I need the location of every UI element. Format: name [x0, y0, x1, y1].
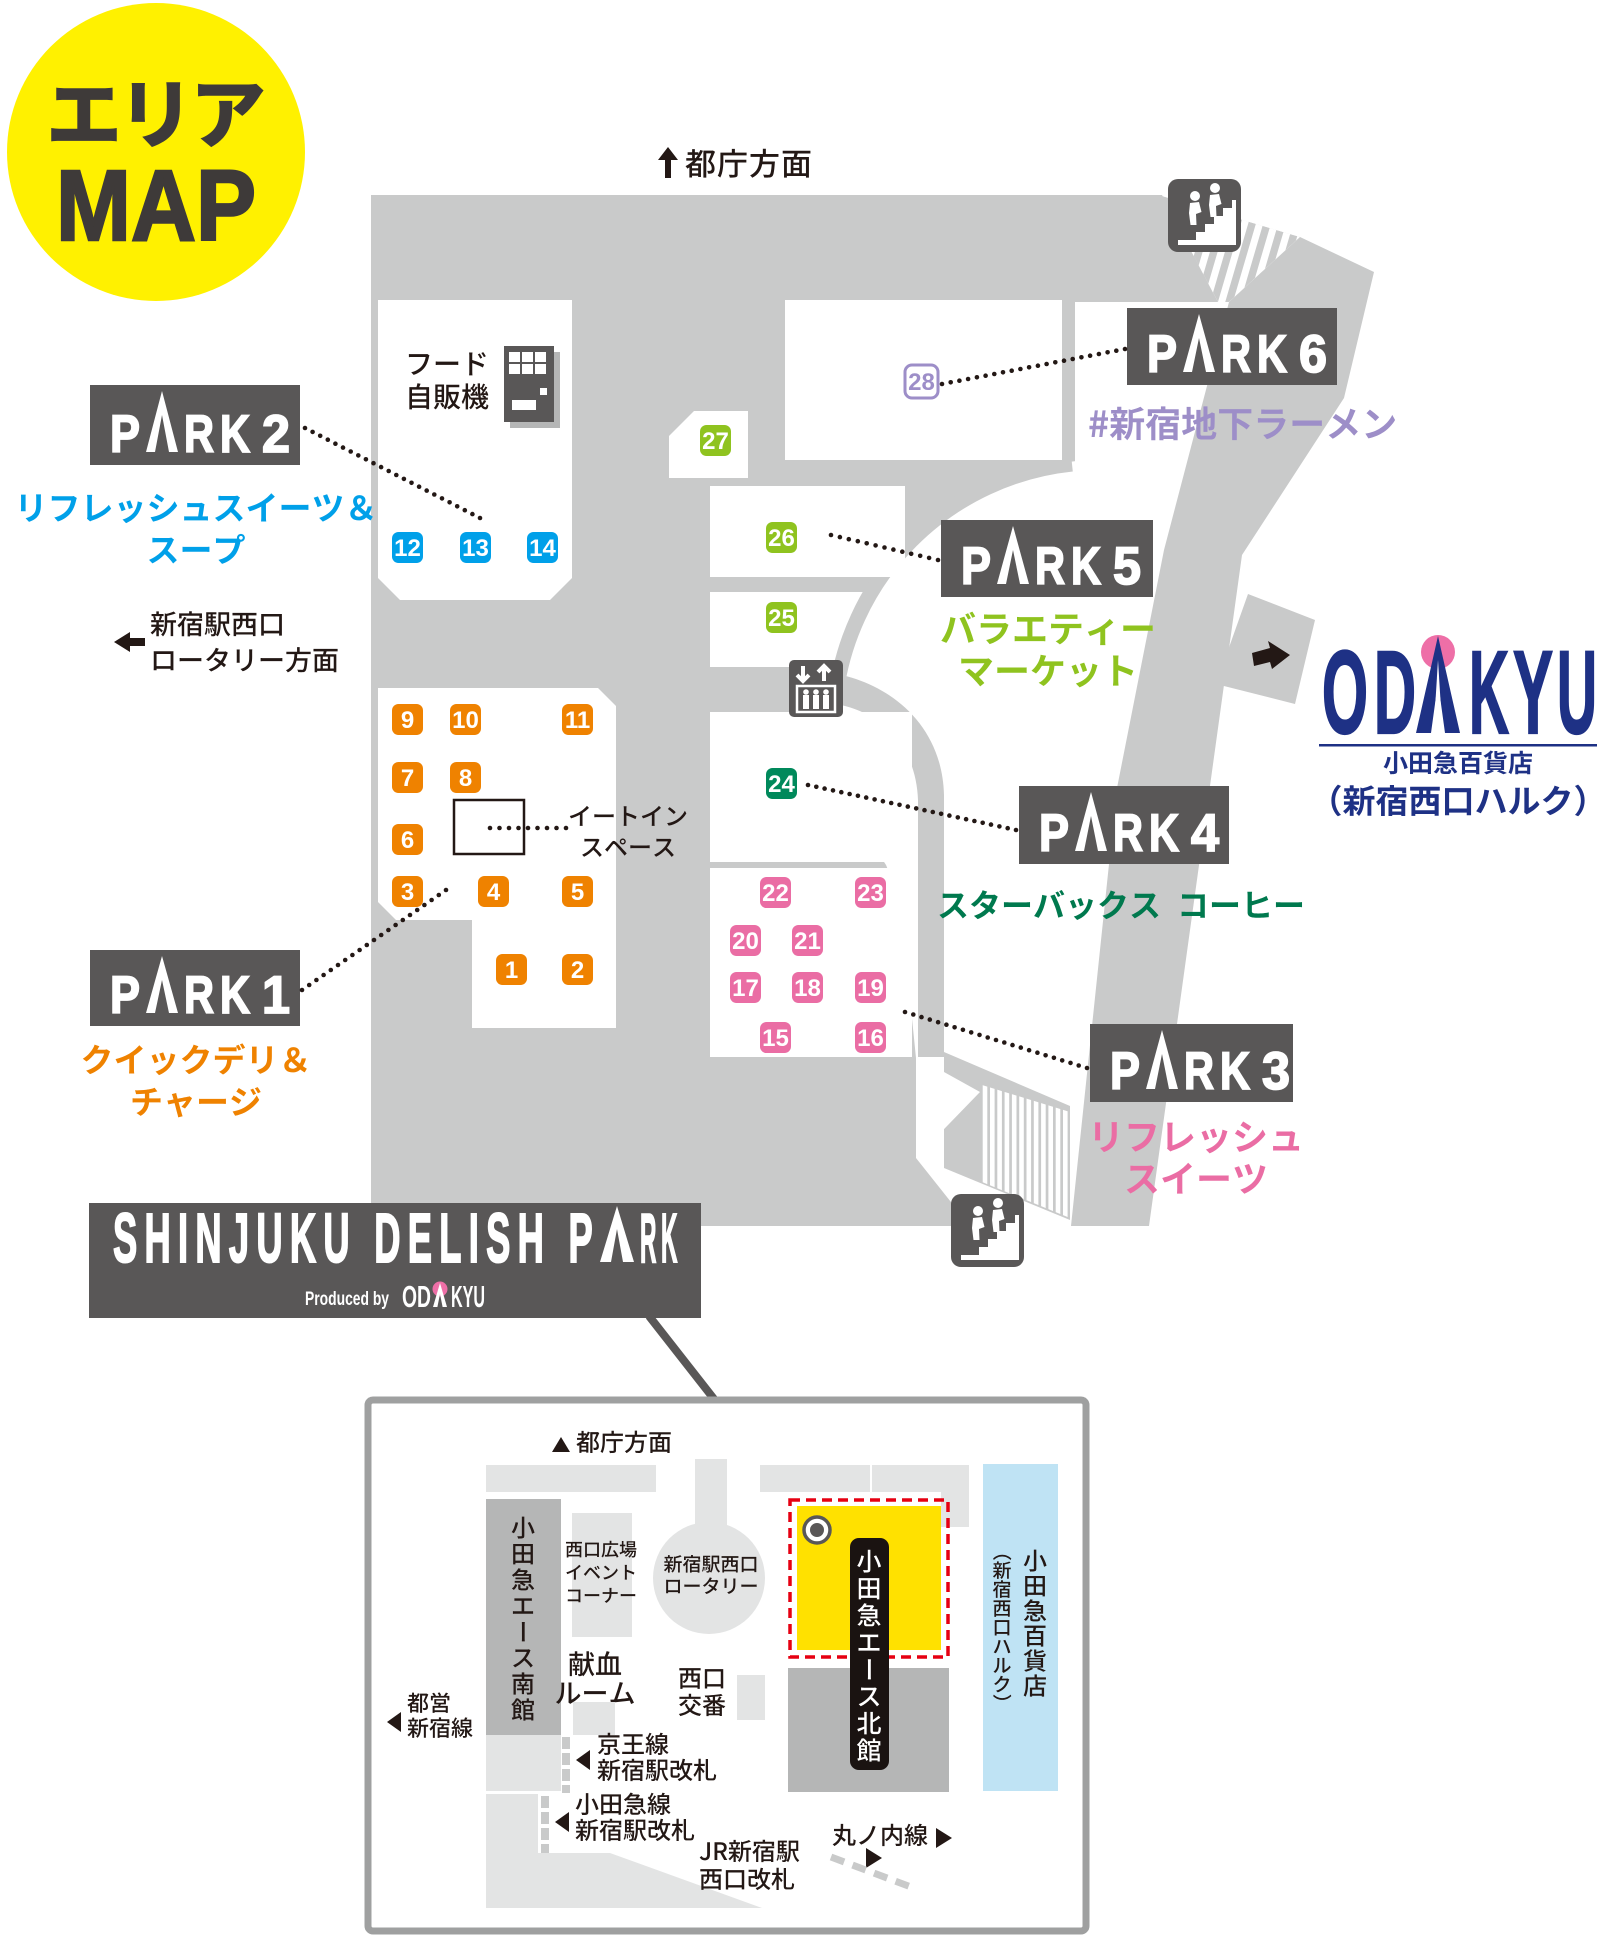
svg-text:17: 17 — [732, 975, 759, 1002]
svg-text:5: 5 — [1113, 537, 1141, 596]
svg-text:O: O — [1322, 627, 1368, 759]
svg-text:P: P — [961, 537, 991, 596]
svg-text:6: 6 — [1299, 325, 1327, 384]
svg-text:R: R — [1035, 537, 1065, 596]
svg-text:K: K — [1071, 537, 1101, 596]
svg-text:SHINJUKU DELISH P: SHINJUKU DELISH P — [113, 1199, 600, 1277]
svg-text:1: 1 — [262, 966, 290, 1025]
svg-text:27: 27 — [702, 428, 729, 455]
svg-text:K: K — [1469, 627, 1509, 759]
svg-text:12: 12 — [394, 535, 421, 562]
svg-text:4: 4 — [1191, 804, 1219, 863]
svg-text:RK: RK — [640, 1199, 682, 1277]
svg-text:R: R — [1221, 325, 1251, 384]
svg-text:6: 6 — [401, 827, 414, 854]
svg-text:K: K — [1149, 804, 1179, 863]
svg-text:16: 16 — [857, 1025, 884, 1052]
svg-text:23: 23 — [857, 880, 884, 907]
svg-text:9: 9 — [401, 707, 414, 734]
svg-text:4: 4 — [487, 879, 501, 906]
svg-text:14: 14 — [529, 535, 556, 562]
svg-text:13: 13 — [462, 535, 489, 562]
svg-text:8: 8 — [459, 765, 472, 792]
svg-text:18: 18 — [794, 975, 821, 1002]
svg-text:K: K — [1220, 1042, 1250, 1101]
svg-text:10: 10 — [452, 707, 479, 734]
svg-text:3: 3 — [401, 879, 414, 906]
svg-text:3: 3 — [1262, 1042, 1290, 1101]
svg-text:P: P — [1147, 325, 1177, 384]
svg-text:22: 22 — [762, 880, 789, 907]
svg-text:KYU: KYU — [451, 1279, 485, 1314]
svg-text:15: 15 — [762, 1025, 789, 1052]
svg-text:D: D — [1374, 627, 1416, 759]
svg-text:11: 11 — [565, 707, 590, 734]
svg-text:OD: OD — [402, 1279, 431, 1314]
svg-text:R: R — [184, 405, 214, 464]
svg-text:K: K — [1257, 325, 1287, 384]
svg-text:1: 1 — [505, 957, 518, 984]
svg-text:7: 7 — [401, 765, 414, 792]
svg-text:26: 26 — [768, 525, 795, 552]
svg-text:MAP: MAP — [56, 150, 256, 262]
svg-text:Y: Y — [1513, 627, 1553, 759]
svg-text:5: 5 — [571, 879, 584, 906]
svg-text:P: P — [1110, 1042, 1140, 1101]
svg-text:R: R — [1113, 804, 1143, 863]
svg-text:R: R — [1184, 1042, 1214, 1101]
svg-text:P: P — [110, 966, 140, 1025]
svg-text:K: K — [220, 966, 250, 1025]
svg-text:24: 24 — [768, 771, 795, 798]
svg-text:R: R — [184, 966, 214, 1025]
svg-text:2: 2 — [262, 405, 290, 464]
svg-text:2: 2 — [571, 957, 584, 984]
svg-text:K: K — [220, 405, 250, 464]
svg-text:28: 28 — [908, 369, 935, 396]
svg-text:19: 19 — [857, 975, 884, 1002]
svg-text:Produced by: Produced by — [305, 1289, 389, 1310]
svg-text:P: P — [110, 405, 140, 464]
svg-text:25: 25 — [768, 605, 795, 632]
svg-text:21: 21 — [794, 928, 821, 955]
svg-text:U: U — [1557, 627, 1597, 759]
svg-text:20: 20 — [732, 928, 759, 955]
svg-text:P: P — [1039, 804, 1069, 863]
